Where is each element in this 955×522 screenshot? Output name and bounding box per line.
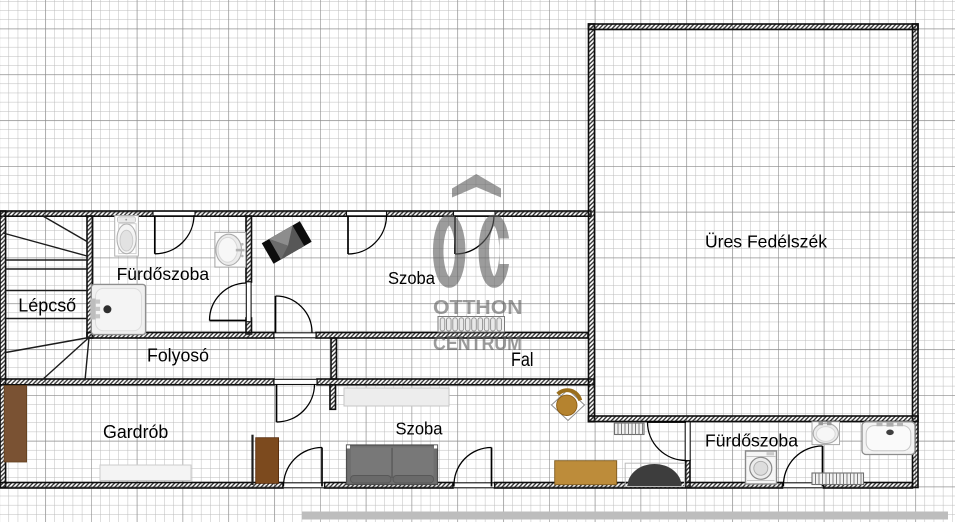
svg-text:Folyosó: Folyosó	[147, 346, 209, 366]
svg-text:Üres Fedélszék: Üres Fedélszék	[705, 231, 827, 251]
svg-text:Lépcső: Lépcső	[18, 296, 76, 316]
svg-text:Fürdőszoba: Fürdőszoba	[705, 431, 798, 451]
svg-text:Szoba: Szoba	[388, 268, 435, 288]
svg-text:Szoba: Szoba	[396, 419, 443, 439]
svg-text:Gardrób: Gardrób	[103, 422, 168, 442]
svg-text:Fürdőszoba: Fürdőszoba	[117, 264, 210, 284]
svg-text:CENTRUM: CENTRUM	[433, 332, 522, 355]
svg-text:OTTHON: OTTHON	[433, 296, 523, 319]
